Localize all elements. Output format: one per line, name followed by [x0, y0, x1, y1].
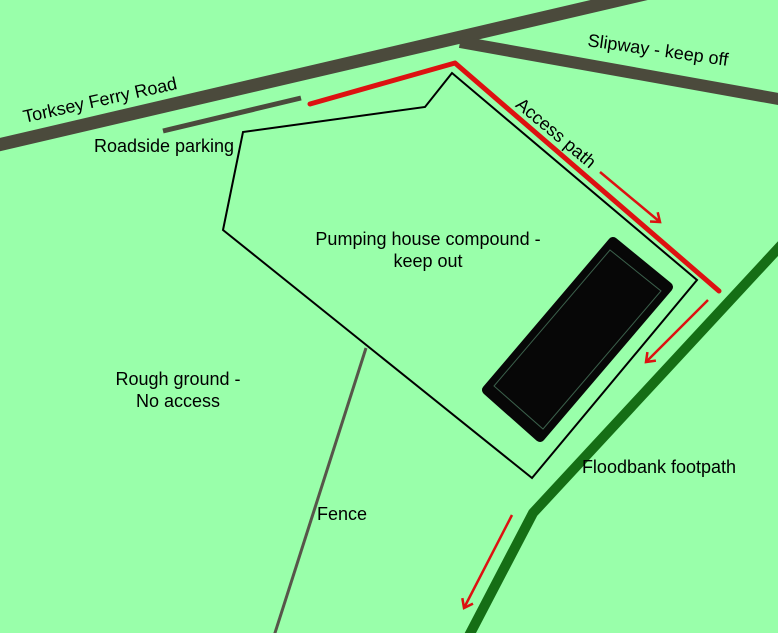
- rough-ground-label-line2: No access: [115, 390, 240, 412]
- compound-label-line1: Pumping house compound -: [315, 228, 540, 250]
- floodbank-footpath-label: Floodbank footpath: [582, 456, 736, 478]
- roadside-parking-label: Roadside parking: [94, 135, 234, 157]
- compound-label: Pumping house compound - keep out: [315, 228, 540, 272]
- site-access-map: Torksey Ferry Road Slipway - keep off Ro…: [0, 0, 778, 633]
- fence-label: Fence: [317, 503, 367, 525]
- compound-label-line2: keep out: [315, 250, 540, 272]
- rough-ground-label-line1: Rough ground -: [115, 368, 240, 390]
- rough-ground-label: Rough ground - No access: [115, 368, 240, 412]
